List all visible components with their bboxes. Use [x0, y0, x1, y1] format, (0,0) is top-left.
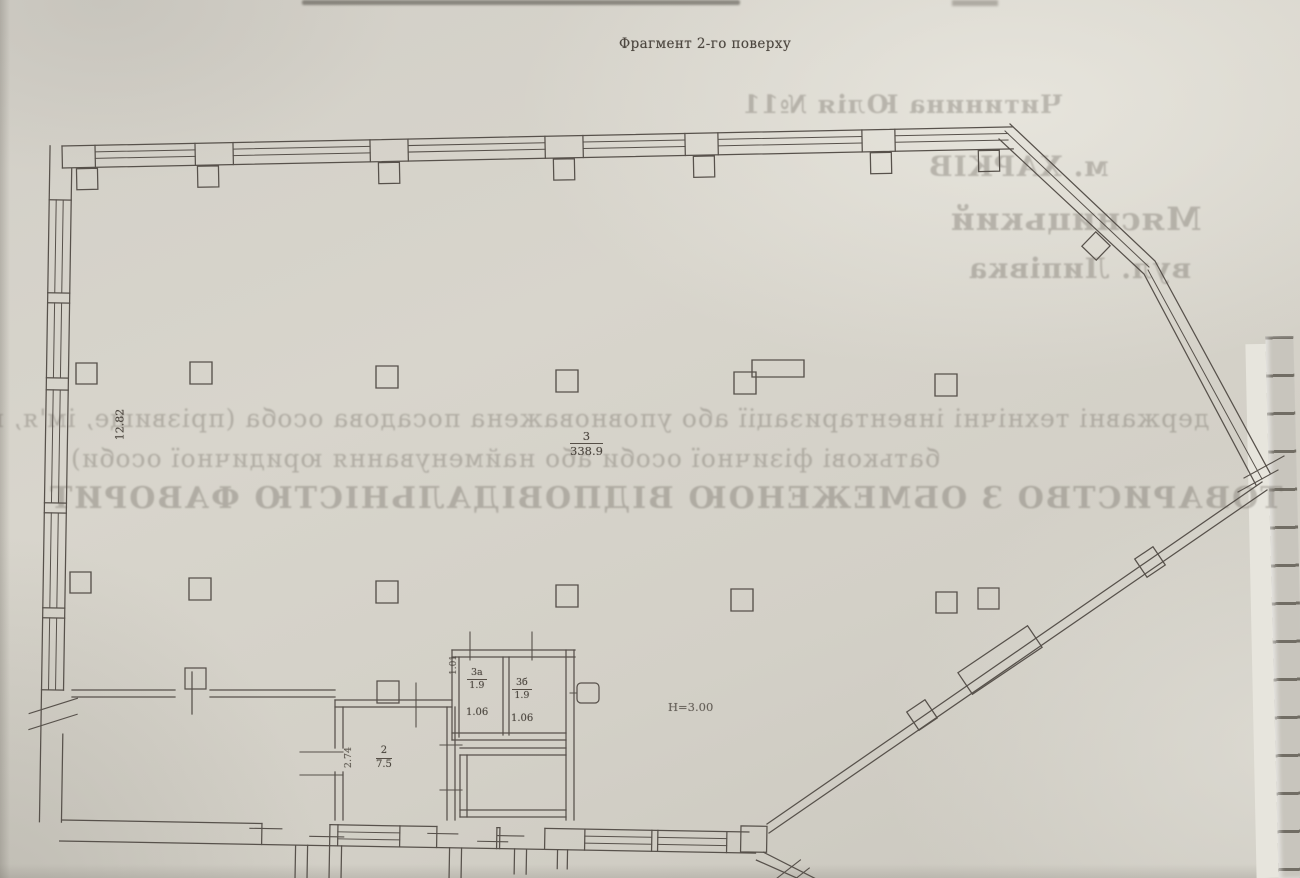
dimension-wc-a: 1.06: [466, 707, 488, 718]
room-area: 1.9: [512, 690, 532, 701]
wall-break-mark: [29, 698, 77, 731]
floor-plan-drawing: [0, 0, 1300, 878]
dimension-door: 1.01: [449, 655, 459, 675]
room-label-stair: 2 7.5: [376, 746, 392, 770]
top-exterior-wall: [62, 127, 1014, 190]
fixture: [577, 683, 599, 703]
interior-partitions: [72, 632, 599, 820]
duct-shaft: [752, 360, 804, 377]
room-label-wc-a: 3а 1.9: [467, 668, 487, 691]
left-exterior-wall: [27, 146, 86, 823]
wall-columns-top: [76, 150, 999, 190]
diagonal-pillar: [907, 700, 938, 731]
drawing-title: Фрагмент 2-го поверху: [619, 36, 791, 52]
room-area: 7.5: [376, 759, 392, 771]
bottom-exterior-wall: [59, 814, 838, 878]
room-label-wc-b: 3б 1.9: [512, 678, 532, 701]
wall-column-diagonal: [1082, 232, 1110, 260]
dimension-wc-b: 1.06: [511, 713, 533, 724]
door-ticks: [300, 683, 462, 790]
ceiling-height-label: Н=3.00: [668, 700, 713, 714]
corner-column: [741, 826, 767, 852]
room-number: 3а: [467, 668, 487, 680]
wall-column: [185, 668, 206, 689]
room-label-hall: 3 338.9: [570, 430, 603, 457]
wall-break-mark: [1238, 456, 1284, 492]
room-area: 1.9: [467, 680, 487, 691]
free-column: [978, 588, 999, 609]
scanned-floor-plan-page: Читинина Юлія №11 м. ХАРКІВ Мясницький в…: [0, 0, 1300, 878]
dimension-left-wall: 12.82: [113, 409, 126, 441]
column-grid: [70, 360, 957, 613]
room-number: 3б: [512, 678, 532, 690]
upper-right-diagonal-wall: [999, 124, 1284, 492]
lower-right-diagonal-wall: [767, 482, 1267, 833]
room-area: 338.9: [570, 444, 603, 457]
room-number: 2: [376, 746, 392, 759]
wall-stubs: [295, 845, 568, 878]
door-ticks: [470, 632, 532, 660]
room-number: 3: [570, 430, 603, 444]
dimension-stair: 2.74: [343, 747, 354, 768]
